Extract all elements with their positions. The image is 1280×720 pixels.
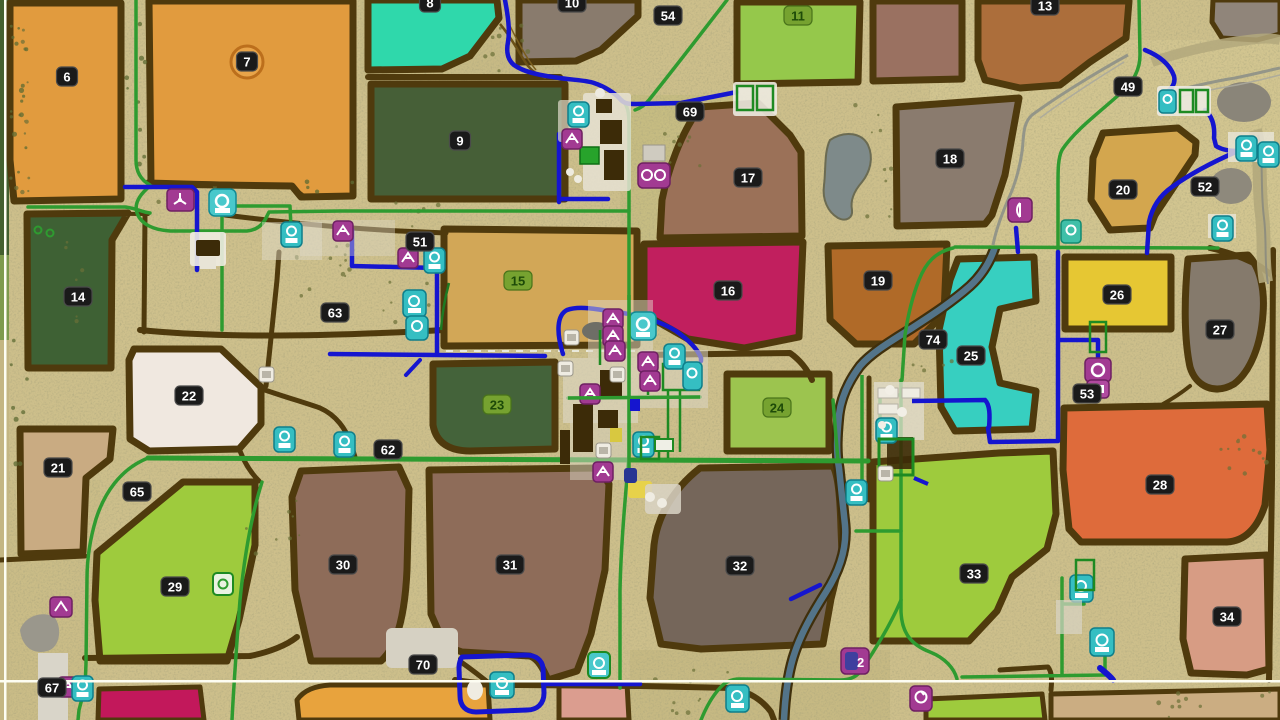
svg-text:13: 13 — [1038, 0, 1052, 14]
svg-text:10: 10 — [565, 0, 579, 11]
svg-text:70: 70 — [416, 658, 430, 673]
svg-text:30: 30 — [336, 558, 350, 573]
svg-text:2: 2 — [857, 655, 864, 670]
svg-text:14: 14 — [71, 290, 86, 305]
svg-text:67: 67 — [45, 681, 59, 696]
svg-text:16: 16 — [721, 284, 735, 299]
svg-text:26: 26 — [1110, 288, 1124, 303]
svg-text:29: 29 — [168, 580, 182, 595]
svg-text:53: 53 — [1080, 387, 1094, 402]
svg-text:19: 19 — [871, 274, 885, 289]
svg-text:62: 62 — [381, 443, 395, 458]
svg-text:7: 7 — [243, 55, 250, 70]
svg-text:34: 34 — [1220, 610, 1235, 625]
svg-text:63: 63 — [328, 306, 342, 321]
svg-text:9: 9 — [456, 134, 463, 149]
svg-text:20: 20 — [1116, 183, 1130, 198]
svg-text:31: 31 — [503, 558, 517, 573]
svg-text:49: 49 — [1121, 80, 1135, 95]
svg-text:22: 22 — [182, 389, 196, 404]
svg-text:28: 28 — [1153, 478, 1167, 493]
svg-text:69: 69 — [683, 105, 697, 120]
svg-text:24: 24 — [770, 401, 785, 416]
svg-text:25: 25 — [964, 349, 978, 364]
svg-text:52: 52 — [1198, 180, 1212, 195]
svg-text:8: 8 — [426, 0, 433, 11]
svg-text:21: 21 — [51, 461, 65, 476]
svg-text:33: 33 — [967, 567, 981, 582]
svg-text:6: 6 — [63, 70, 70, 85]
svg-text:17: 17 — [741, 171, 755, 186]
svg-text:54: 54 — [661, 9, 676, 24]
svg-text:23: 23 — [490, 398, 504, 413]
svg-text:65: 65 — [130, 485, 144, 500]
svg-text:15: 15 — [511, 274, 525, 289]
svg-text:32: 32 — [733, 559, 747, 574]
svg-text:27: 27 — [1213, 323, 1227, 338]
svg-text:18: 18 — [943, 152, 957, 167]
svg-text:74: 74 — [926, 333, 941, 348]
svg-text:11: 11 — [791, 9, 805, 24]
svg-text:51: 51 — [413, 235, 427, 250]
